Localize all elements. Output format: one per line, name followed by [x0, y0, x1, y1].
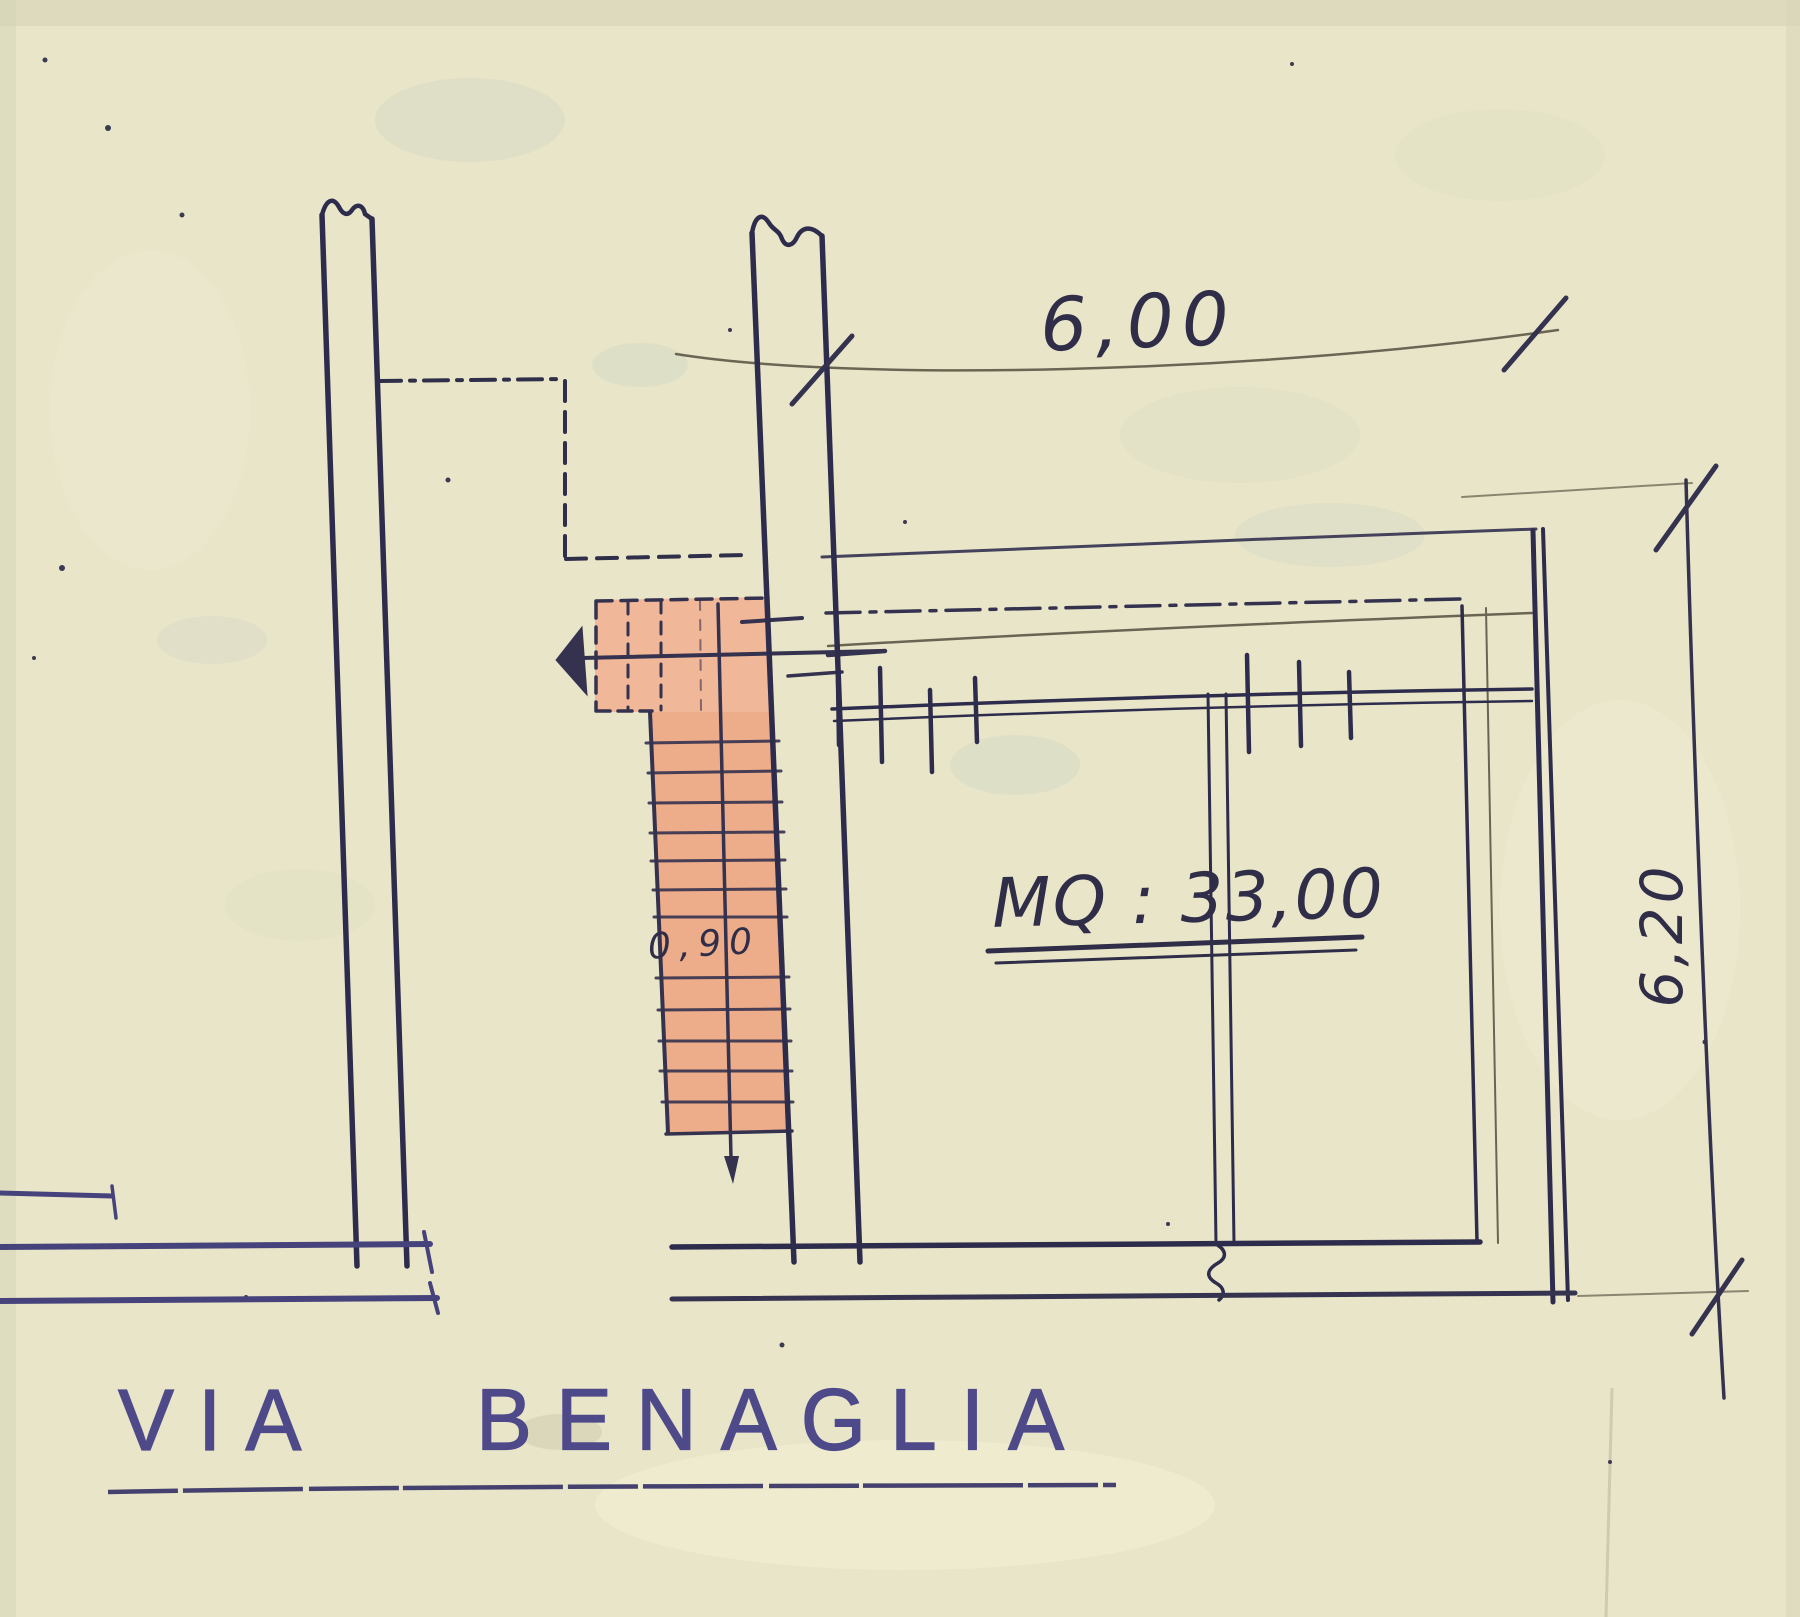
street-line-upper-left	[0, 1244, 430, 1247]
floor-plan-canvas: 6,00 MQ : 33,00 6,20 0,90 VIA BENAGLIA	[0, 0, 1800, 1617]
area-label: MQ : 33,00	[991, 855, 1386, 944]
street-name-word-1: VIA	[118, 1371, 325, 1469]
street-name-word-2: BENAGLIA	[476, 1371, 1088, 1469]
stair-width-label: 0,90	[647, 921, 761, 968]
street-line-lower-left	[0, 1298, 437, 1301]
height-dimension-label: 6,20	[1628, 862, 1696, 1007]
width-dimension-label: 6,00	[1039, 276, 1239, 369]
street-stub-left-edge	[0, 1193, 112, 1196]
scanned-floor-plan: 6,00 MQ : 33,00 6,20 0,90 VIA BENAGLIA	[0, 0, 1800, 1617]
